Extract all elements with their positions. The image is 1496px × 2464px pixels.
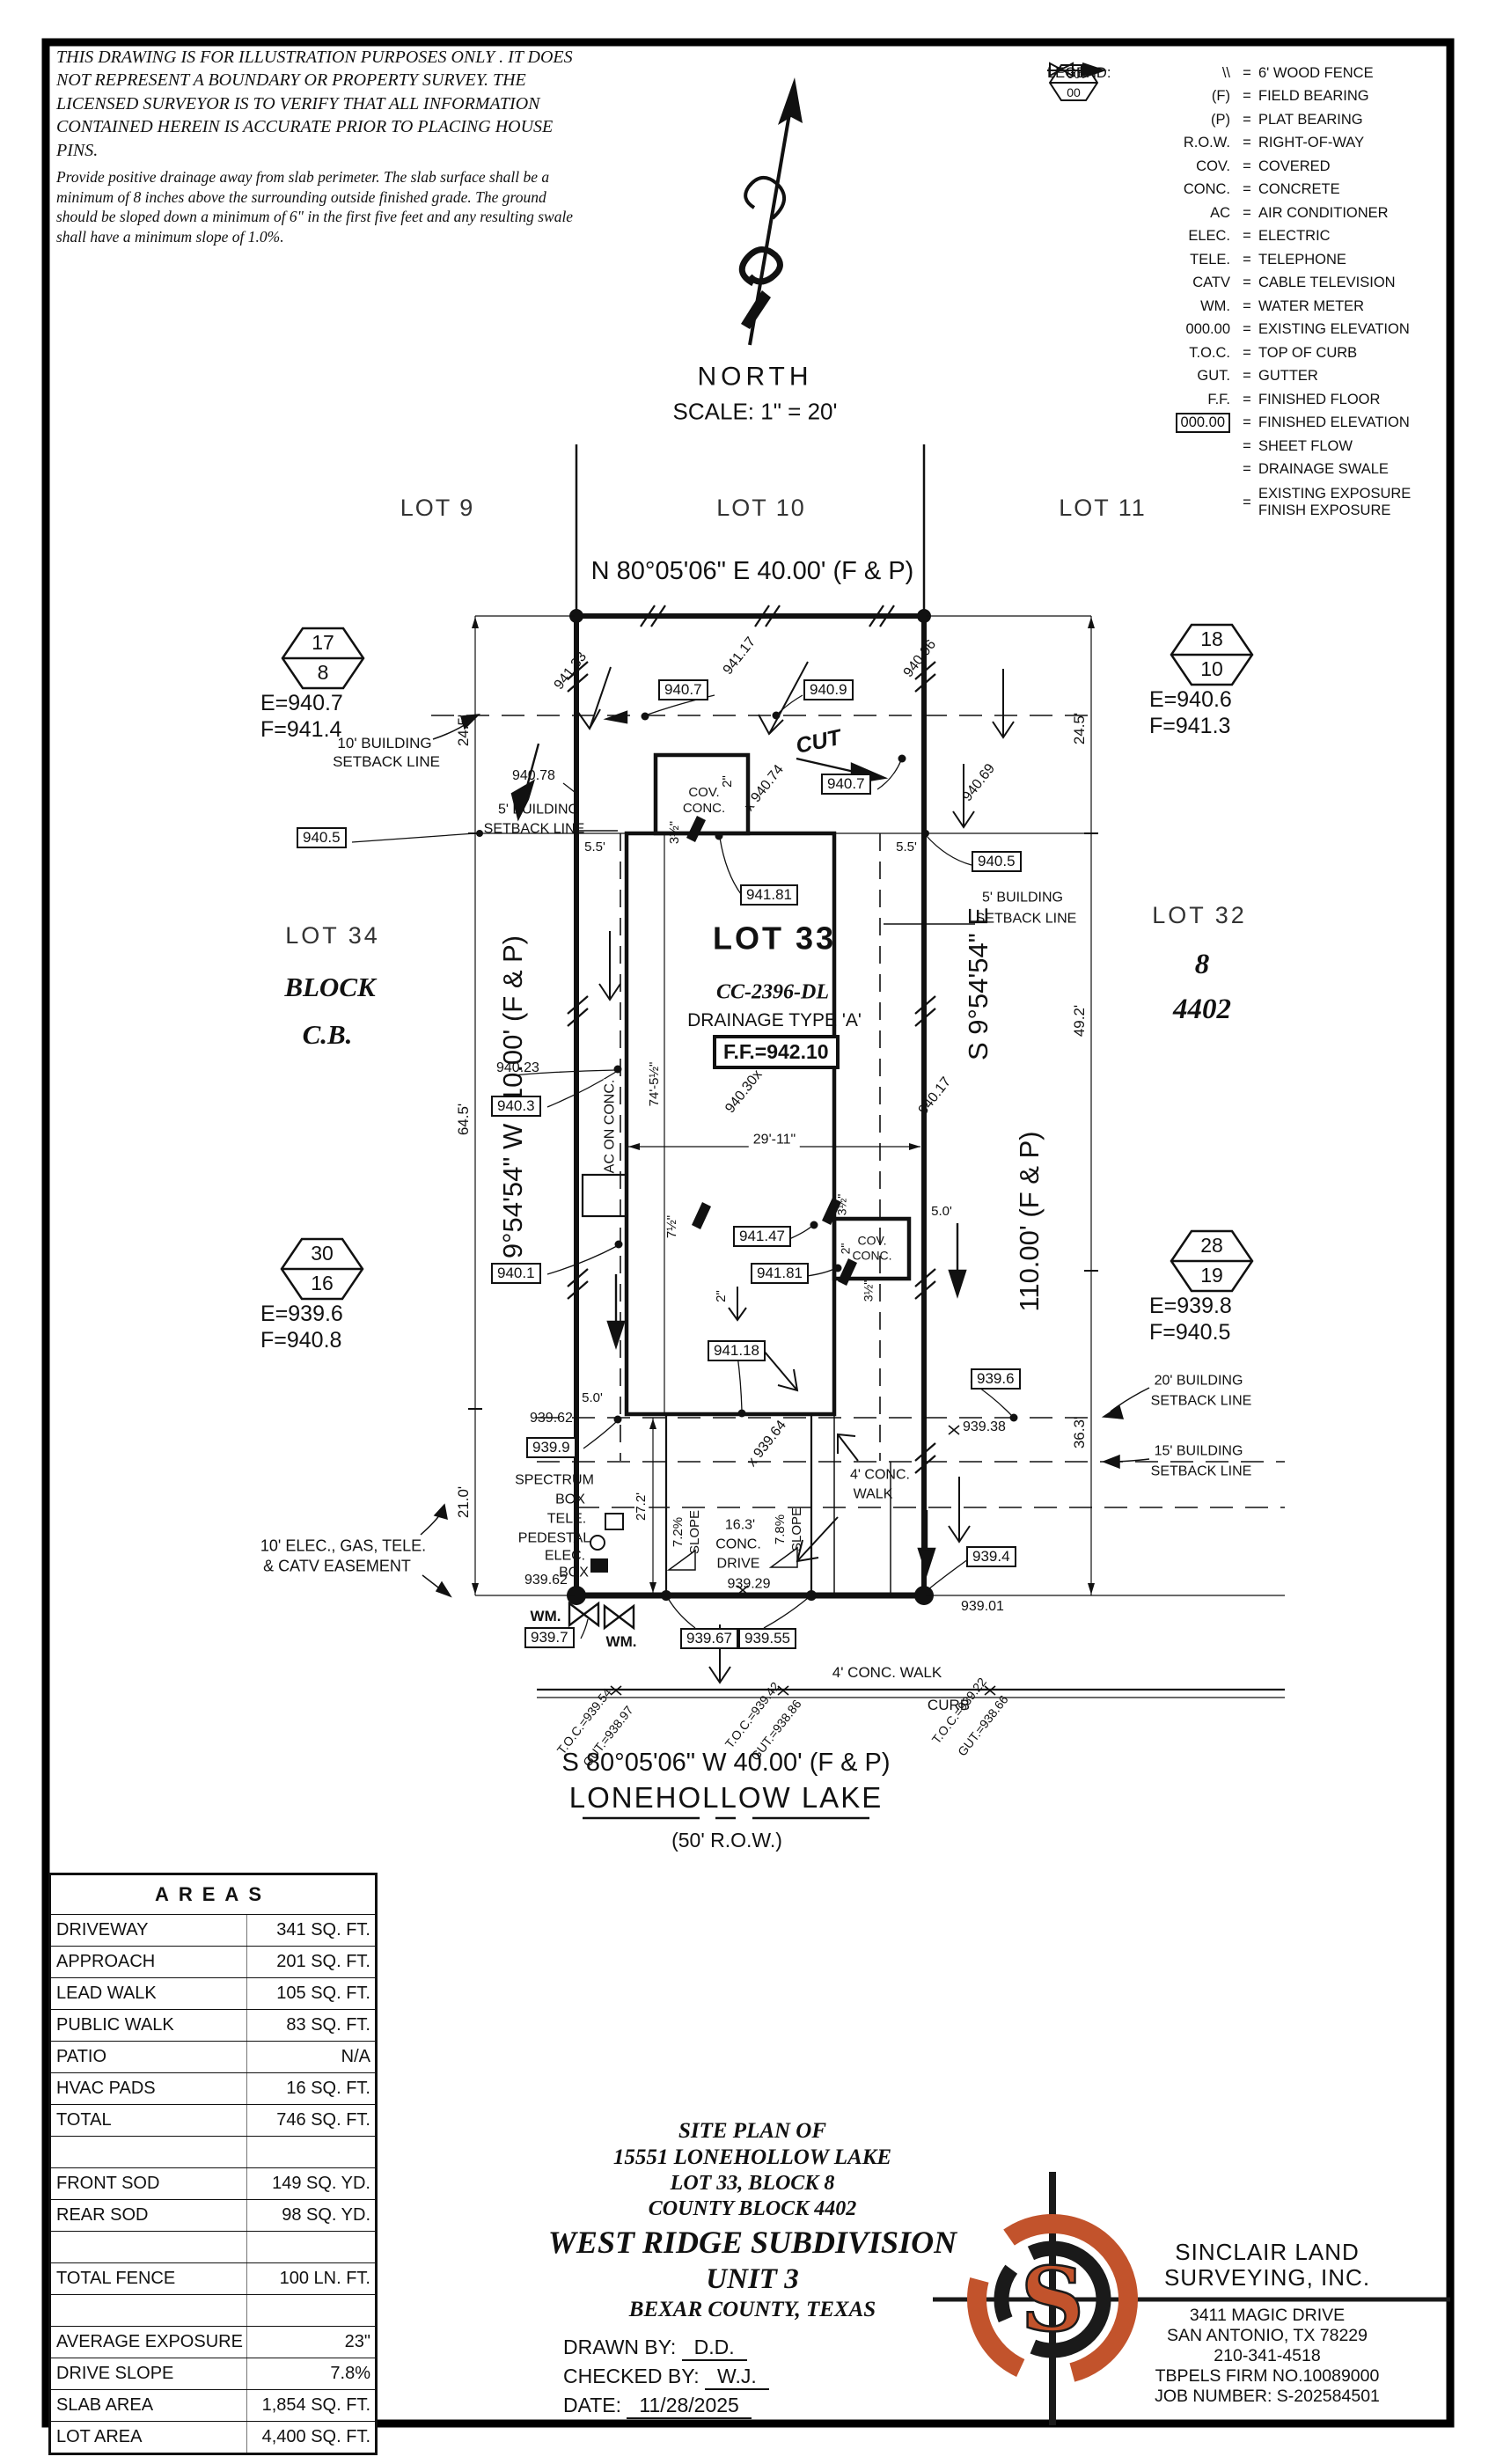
table-row: LEAD WALK105 SQ. FT. [51,1977,375,2009]
svg-text:00: 00 [1067,67,1081,81]
conc-drive-label: 16.3' [725,1519,755,1534]
block-number: 8 [1195,950,1210,979]
elec-box-icon [591,1559,607,1572]
dimension-label: 21.0' [456,1486,472,1518]
table-row [51,2294,375,2326]
firm-phone: 210-341-4518 [1140,2346,1395,2366]
east-boundary-bearing: S 9°54'54" E [964,907,993,1060]
finished-elevation-box: 939.6 [971,1368,1021,1390]
conc-drive-label: CONC. [715,1538,761,1553]
finish-elevation: F=940.8 [260,1329,341,1352]
site-plan-sheet: { "disclaimer": { "para1": "THIS DRAWING… [0,0,1496,2464]
dimension-label: 74'-5½" [648,1062,662,1107]
water-meter-icon [569,1603,634,1628]
dimension-label: 49.2' [1072,1005,1088,1037]
finished-elevation-box: 940.9 [803,679,854,700]
hex-marker-value: 17 [312,633,334,654]
table-row: HVAC PADS16 SQ. FT. [51,2072,375,2104]
dimension-label: 64.5' [456,1104,472,1135]
finished-floor-elevation: F.F.=942.10 [713,1035,840,1069]
ac-on-conc-label: AC ON CONC. [604,1080,619,1174]
checked-by-value: W.J. [705,2365,769,2390]
conc-walk-label: 4' CONC. [850,1469,910,1484]
finished-elevation-box: 941.18 [708,1340,766,1361]
cov-conc-label: COV. [688,786,719,800]
unit-line: UNIT 3 [475,2263,1030,2296]
existing-elevation: E=939.6 [260,1302,343,1325]
finished-elevation-box: 940.3 [491,1096,541,1117]
dimension-label: 5.0' [582,1391,603,1405]
firm-name: SINCLAIR LAND SURVEYING, INC. [1155,2240,1380,2291]
finished-elevation-box: 000.00 [1176,413,1230,433]
county-block-number: 4402 [1173,994,1231,1024]
lot-block-line: LOT 33, BLOCK 8 [475,2172,1030,2196]
dimension-label: 5.0' [931,1205,952,1219]
slope-label: SLOPE [790,1507,804,1551]
house-outline [627,755,909,1414]
date-label: DATE: [563,2394,621,2416]
setback-label: 10' BUILDING [337,736,431,752]
setback-label: SETBACK LINE [333,754,440,770]
hex-marker-value: 18 [1200,629,1223,650]
dimension-label: 5.5' [584,840,605,854]
finished-elevation-box: 941.47 [733,1226,791,1247]
dimension-label: 24.5' [1072,713,1088,744]
finish-elevation: F=940.5 [1149,1321,1230,1344]
spot-elevation: 939.01 [961,1600,1004,1615]
setback-label: 20' BUILDING [1155,1375,1243,1390]
spot-elevation: 940.23 [496,1061,539,1076]
lot11-label: LOT 11 [1059,495,1147,520]
table-row [51,2136,375,2167]
hex-marker-value: 16 [311,1273,334,1294]
easement-label: 10' ELEC., GAS, TELE. [260,1538,426,1555]
inch-dim: 2" [715,1290,729,1302]
existing-elevation: E=939.8 [1149,1294,1232,1317]
elec-box-label: ELEC. [545,1550,585,1565]
drawn-by-value: D.D. [682,2336,747,2361]
finished-elevation-box: 940.7 [658,679,708,700]
finished-elevation-box: 940.7 [821,774,871,795]
legend-desc: 6' WOOD FENCE [1258,65,1374,82]
table-row: SLAB AREA1,854 SQ. FT. [51,2389,375,2421]
drainage-type-label: DRAINAGE TYPE 'A' [687,1011,862,1030]
spot-elevation: 939.29 [728,1578,771,1593]
title-line: SITE PLAN OF [475,2119,1030,2144]
east-boundary-distance: 110.00' (F & P) [1016,1131,1044,1311]
setback-label: SETBACK LINE [1151,1465,1252,1480]
lot9-label: LOT 9 [400,495,475,520]
dimension-label: 36.3' [1072,1417,1088,1448]
table-row: DRIVEWAY341 SQ. FT. [51,1914,375,1946]
lot33-title: LOT 33 [713,921,836,954]
elec-box-label: BOX [559,1566,589,1581]
table-row: FRONT SOD149 SQ. YD. [51,2167,375,2199]
lot34-label: LOT 34 [285,923,380,948]
street-name: LONEHOLLOW LAKE [569,1783,883,1813]
lot10-label: LOT 10 [716,495,806,520]
table-row: PATION/A [51,2041,375,2072]
wood-fence-icon: \\ [1139,65,1236,82]
inch-dim: 3½" [836,1194,849,1215]
inch-dim: 2" [840,1243,853,1255]
finished-elevation-box: 941.81 [751,1263,809,1284]
existing-elevation: E=940.7 [260,692,343,715]
cc-number: CC-2396-DL [716,982,829,1004]
finished-elevation-box: 940.1 [491,1263,541,1284]
finished-elevation-box: 939.9 [526,1437,576,1458]
tele-pedestal-label: TELE. [547,1513,586,1528]
job-number: JOB NUMBER: S-202584501 [1140,2387,1395,2407]
legend: LEGEND:\\=6' WOOD FENCE (F)=FIELD BEARIN… [1047,62,1411,524]
spectrum-box-label: BOX [555,1493,585,1508]
dimension-label: 5.5' [896,840,917,854]
county-block-label: C.B. [303,1021,353,1049]
dimension-label: 29'-11" [749,1133,800,1148]
setback-label: 5' BUILDING [498,803,579,818]
finished-elevation-box: 940.5 [297,827,347,848]
cov-conc-label: COV. [858,1235,887,1248]
areas-table-title: AREAS [51,1875,375,1914]
setback-label: 15' BUILDING [1155,1445,1243,1460]
hex-marker-value: 19 [1200,1265,1223,1287]
block-label: BLOCK [284,973,375,1001]
inch-dim: 3½" [668,821,682,844]
slope-label: 7.2% [671,1517,686,1547]
finish-elevation: F=941.3 [1149,715,1230,737]
firm-contact: 3411 MAGIC DRIVE SAN ANTONIO, TX 78229 2… [1140,2306,1395,2407]
conc-walk-label: WALK [854,1488,893,1503]
lot32-label: LOT 32 [1152,903,1247,928]
utility-symbols [590,1514,623,1572]
disclaimer-block: THIS DRAWING IS FOR ILLUSTRATION PURPOSE… [56,46,584,247]
hex-marker-value: 8 [318,663,329,684]
firm-address-line1: 3411 MAGIC DRIVE [1140,2306,1395,2326]
table-row: DRIVE SLOPE7.8% [51,2358,375,2389]
subdivision-name: WEST RIDGE SUBDIVISION [475,2224,1030,2261]
signature-block: DRAWN BY: D.D. CHECKED BY: W.J. DATE: 11… [563,2332,769,2423]
finished-elevation-box: 939.7 [524,1627,575,1648]
table-row: LOT AREA4,400 SQ. FT. [51,2421,375,2453]
table-row [51,2231,375,2262]
north-boundary-bearing: N 80°05'06" E 40.00' (F & P) [591,558,914,584]
north-label: NORTH [697,363,812,390]
checked-by-label: CHECKED BY: [563,2365,700,2387]
spectrum-box-label: SPECTRUM [515,1474,594,1489]
finish-elevation: F=941.4 [260,718,341,741]
spot-elevation: 940.78 [512,769,555,784]
setback-label: SETBACK LINE [484,823,585,838]
inch-dim: 3½" [862,1280,876,1302]
table-row: REAR SOD98 SQ. YD. [51,2199,375,2231]
drawn-by-label: DRAWN BY: [563,2336,676,2358]
table-row: APPROACH201 SQ. FT. [51,1946,375,1977]
conc-drive-label: DRIVE [717,1558,760,1573]
firm-address-line2: SAN ANTONIO, TX 78229 [1140,2326,1395,2346]
water-meter-label: WM. [531,1609,561,1624]
finished-elevation-box: 941.81 [740,884,798,906]
setback-label: 5' BUILDING [982,891,1063,906]
finished-elevation-box: 940.5 [972,851,1022,872]
spectrum-box-icon [605,1514,623,1529]
scale-label: SCALE: 1" = 20' [673,400,838,423]
title-block: SITE PLAN OF 15551 LONEHOLLOW LAKE LOT 3… [475,2117,1030,2324]
inch-dim: 7½" [665,1215,679,1238]
table-row: PUBLIC WALK83 SQ. FT. [51,2009,375,2041]
dimension-label: 27.2' [634,1492,649,1521]
finished-elevation-box: 939.55 [738,1628,796,1649]
cov-conc-label: CONC. [852,1250,891,1263]
tele-pedestal-icon [590,1536,605,1550]
easement-label: & CATV EASEMENT [263,1558,411,1575]
cov-conc-label: CONC. [683,802,725,816]
north-arrow-icon [741,77,803,345]
exposure-hexagons [282,625,1252,1299]
logo-letter: S [1021,2248,1084,2351]
south-boundary-bearing: S 80°05'06" W 40.00' (F & P) [561,1749,890,1776]
hex-marker-value: 30 [311,1243,334,1265]
setback-label: SETBACK LINE [1151,1395,1252,1410]
firm-number: TBPELS FIRM NO.10089000 [1140,2366,1395,2387]
table-row: TOTAL746 SQ. FT. [51,2104,375,2136]
water-meter-label: WM. [606,1634,637,1650]
slope-label: 7.8% [774,1514,788,1544]
slope-label: SLOPE [688,1510,702,1554]
exposure-hex-icon: 0000 [1047,62,1100,104]
site-address: 15551 LONEHOLLOW LAKE [475,2145,1030,2170]
right-of-way-label: (50' R.O.W.) [671,1830,782,1852]
dimension-label: 24.5' [456,715,472,746]
finished-elevation-box: 939.67 [680,1628,738,1649]
disclaimer-paragraph-2: Provide positive drainage away from slab… [56,167,584,247]
inch-dim: 2" [721,775,735,788]
hex-marker-value: 10 [1200,659,1223,680]
date-value: 11/28/2025 [627,2394,751,2419]
svg-text:00: 00 [1067,85,1081,99]
finished-elevation-box: 939.4 [966,1546,1016,1567]
existing-elevation: E=940.6 [1149,688,1232,711]
county-state-line: BEXAR COUNTY, TEXAS [475,2298,1030,2322]
spot-elevation: 939.62 [530,1412,573,1426]
tele-pedestal-label: PEDESTAL [518,1532,590,1547]
spot-elevation: 939.38 [963,1420,1006,1435]
county-block-line: COUNTY BLOCK 4402 [475,2197,1030,2221]
disclaimer-paragraph-1: THIS DRAWING IS FOR ILLUSTRATION PURPOSE… [56,46,584,162]
table-row: AVERAGE EXPOSURE23" [51,2326,375,2358]
areas-table: AREAS DRIVEWAY341 SQ. FT. APPROACH201 SQ… [48,1873,378,2455]
conc-walk-label: 4' CONC. WALK [832,1665,942,1681]
hex-marker-value: 28 [1200,1236,1223,1257]
table-row: TOTAL FENCE100 LN. FT. [51,2262,375,2294]
